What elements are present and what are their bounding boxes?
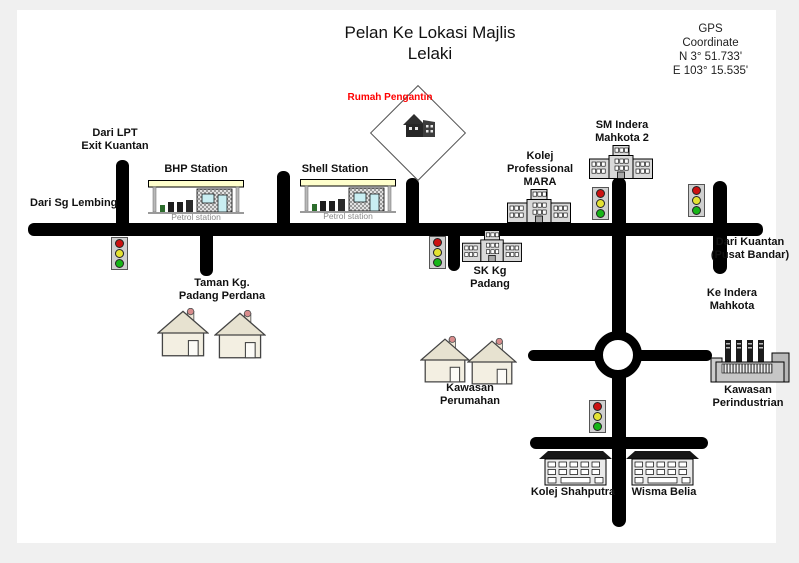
roundabout <box>594 331 642 379</box>
dari-lpt-label: Dari LPT Exit Kuantan <box>65 127 165 153</box>
road-stub-lpt <box>116 160 129 232</box>
page-title: Pelan Ke Lokasi Majlis Lelaki <box>280 22 580 64</box>
shell-station-label: Shell Station <box>285 163 385 176</box>
gps-coordinate-text: GPS Coordinate N 3° 51.733' E 103° 15.53… <box>648 22 773 78</box>
traffic-light-icon <box>592 187 609 220</box>
traffic-light-icon <box>589 400 606 433</box>
school-building-icon <box>506 189 572 223</box>
college-building-icon <box>626 448 699 486</box>
kolej-mara-label: Kolej Professional MARA <box>490 150 590 189</box>
bhp-station-label: BHP Station <box>146 163 246 176</box>
wisma-belia-label: Wisma Belia <box>614 486 714 499</box>
traffic-light-icon <box>688 184 705 217</box>
road-stub-rumah-pengantin <box>406 178 419 232</box>
petrol-station-icon <box>300 179 396 213</box>
road-stub-mid <box>277 171 290 231</box>
map-canvas: Pelan Ke Lokasi Majlis Lelaki GPS Coordi… <box>0 0 799 563</box>
rumah-pengantin-label: Rumah Pengantin <box>340 91 440 104</box>
house-icon <box>420 336 470 384</box>
petrol-station-icon <box>148 180 244 214</box>
sm-indera-label: SM Indera Mahkota 2 <box>572 119 672 145</box>
kolej-shahputra-label: Kolej Shahputra <box>523 486 623 499</box>
house-icon <box>157 308 209 358</box>
ke-indera-mahkota-label: Ke Indera Mahkota <box>687 287 777 313</box>
house-icon <box>467 338 517 386</box>
sk-kg-padang-label: SK Kg Padang <box>440 265 540 291</box>
dari-kuantan-label: Dari Kuantan (Pusat Bandar) <box>705 236 795 262</box>
wedding-house-icon <box>401 111 437 141</box>
kawasan-perumahan-label: Kawasan Perumahan <box>420 382 520 408</box>
college-building-icon <box>539 448 612 486</box>
traffic-light-icon <box>111 237 128 270</box>
house-icon <box>214 310 266 360</box>
road-stub-taman <box>200 230 213 276</box>
factory-icon <box>710 338 790 384</box>
taman-kg-label: Taman Kg. Padang Perdana <box>172 277 272 303</box>
kawasan-perindustrian-label: Kawasan Perindustrian <box>703 384 793 410</box>
school-building-icon <box>462 230 522 262</box>
petrol-station-caption: Petrol station <box>300 211 396 221</box>
road-roundabout-arm-right <box>637 350 712 361</box>
dari-sg-lembing-label: Dari Sg Lembing <box>30 197 150 210</box>
road-main-horizontal <box>28 223 763 236</box>
road-roundabout-arm-left <box>528 350 599 361</box>
petrol-station-caption: Petrol station <box>148 212 244 222</box>
school-building-icon <box>588 145 654 179</box>
